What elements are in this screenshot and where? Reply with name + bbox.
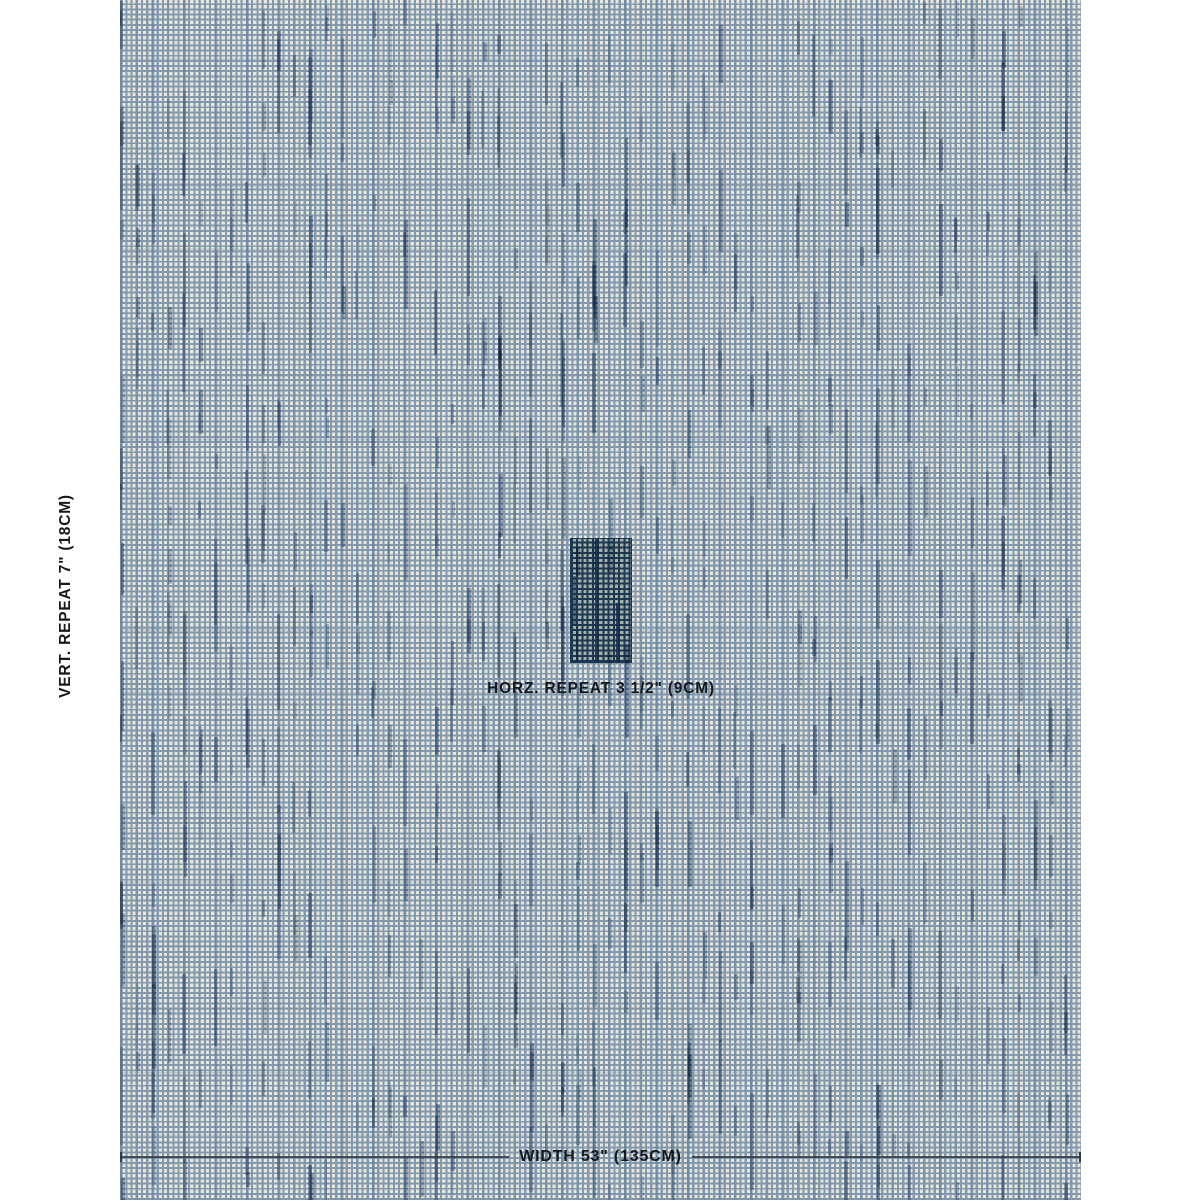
fabric-texture-dash [120, 1047, 123, 1145]
fabric-texture-dash [262, 103, 266, 131]
fabric-texture-dash [246, 709, 250, 768]
fabric-texture-dash [703, 521, 706, 557]
fabric-texture-dash [324, 957, 327, 1005]
fabric-texture-dash [924, 466, 928, 518]
fabric-texture-dash [812, 35, 815, 118]
fabric-texture-dash [938, 931, 942, 1019]
fabric-texture-dash [562, 233, 565, 284]
fabric-texture-dash [467, 968, 470, 1053]
fabric-texture-dash [529, 834, 533, 906]
fabric-texture-dash [908, 769, 911, 855]
fabric-texture-dash [750, 731, 754, 816]
fabric-texture-dash [829, 1086, 832, 1122]
fabric-texture-dash [388, 464, 392, 485]
fabric-texture-dash [1002, 542, 1005, 576]
fabric-texture-dash [262, 739, 265, 786]
fabric-texture-dash [686, 752, 689, 786]
fabric-texture-dash [214, 969, 217, 1046]
fabric-texture-dash [970, 404, 973, 420]
fabric-texture-dash [733, 712, 736, 769]
fabric-texture-dash [310, 630, 313, 677]
fabric-texture-dash [971, 497, 974, 548]
fabric-texture-dash [136, 1052, 140, 1071]
fabric-texture-dash [859, 699, 862, 753]
fabric-texture-dash [356, 1102, 359, 1133]
fabric-texture-dash [1018, 318, 1021, 371]
fabric-texture-dash [325, 174, 328, 236]
fabric-product-image: VERT. REPEAT 7" (18CM) HORZ. REPEAT 3 1/… [0, 0, 1200, 1200]
fabric-texture-dash [891, 939, 895, 987]
fabric-texture-dash [1034, 827, 1037, 890]
fabric-texture-dash [293, 702, 297, 719]
fabric-texture-dash [1018, 192, 1021, 255]
fabric-texture-dash [719, 1040, 722, 1134]
fabric-texture-dash [403, 1096, 407, 1117]
fabric-texture-dash [530, 1052, 534, 1132]
fabric-texture-dash [530, 799, 533, 821]
fabric-texture-dash [451, 77, 455, 119]
fabric-texture-dash [688, 821, 692, 887]
fabric-texture-dash [781, 744, 785, 818]
fabric-texture-dash [168, 685, 171, 719]
fabric-texture-dash [924, 388, 927, 406]
fabric-texture-dash [1064, 156, 1067, 193]
fabric-texture-dash [609, 499, 613, 550]
fabric-texture-dash [168, 307, 172, 350]
fabric-texture-dash [640, 843, 643, 862]
fabric-texture-dash [229, 646, 233, 692]
fabric-texture-dash [230, 968, 233, 997]
fabric-texture-dash [545, 589, 548, 624]
fabric-texture-dash [152, 926, 156, 988]
fabric-texture-dash [515, 963, 518, 1014]
fabric-texture-dash [908, 460, 912, 556]
fabric-texture-dash [576, 789, 579, 823]
fabric-texture-dash [1049, 708, 1053, 762]
fabric-texture-dash [262, 322, 265, 374]
fabric-texture-dash [135, 607, 138, 669]
fabric-texture-dash [798, 610, 802, 644]
fabric-texture-dash [263, 153, 266, 177]
fabric-texture-dash [576, 630, 579, 662]
fabric-texture-dash [1001, 964, 1004, 985]
fabric-texture-dash [357, 225, 360, 271]
fabric-texture-dash [687, 150, 690, 214]
fabric-texture-dash [230, 1065, 233, 1105]
fabric-texture-dash [987, 694, 990, 718]
fabric-texture-dash [1003, 455, 1007, 507]
fabric-texture-dash [404, 849, 408, 901]
fabric-texture-dash [121, 1178, 125, 1200]
fabric-texture-dash [168, 549, 172, 584]
fabric-texture-dash [624, 991, 628, 1014]
fabric-texture-dash [355, 271, 358, 319]
fabric-texture-dash [277, 727, 280, 813]
fabric-texture-dash [121, 376, 125, 444]
fabric-texture-dash [955, 273, 959, 290]
fabric-texture-dash [939, 204, 943, 296]
fabric-texture-dash [923, 111, 926, 167]
fabric-texture-dash [719, 951, 722, 1043]
fabric-texture-dash [136, 238, 140, 265]
fabric-texture-dash [687, 232, 691, 264]
fabric-texture-dash [545, 236, 548, 263]
fabric-texture-dash [702, 979, 706, 1004]
fabric-texture-dash [326, 624, 329, 668]
fabric-texture-dash [1002, 1038, 1006, 1114]
fabric-texture-dash [656, 357, 659, 385]
fabric-texture-dash [230, 874, 234, 903]
fabric-texture-dash [844, 1161, 848, 1200]
fabric-texture-dash [893, 749, 897, 803]
width-label: WIDTH 53" (135CM) [519, 1148, 682, 1166]
fabric-texture-dash [703, 932, 707, 980]
fabric-texture-dash [954, 1077, 957, 1100]
fabric-texture-dash [561, 1003, 564, 1035]
fabric-texture-dash [215, 252, 218, 312]
fabric-texture-dash [387, 542, 390, 563]
fabric-texture-dash [877, 1085, 881, 1155]
fabric-texture-dash [608, 918, 612, 949]
fabric-texture-dash [702, 707, 705, 754]
fabric-texture-dash [718, 912, 721, 932]
fabric-texture-dash [955, 314, 958, 363]
fabric-texture-dash [262, 10, 265, 69]
fabric-texture-dash [750, 496, 754, 522]
fabric-texture-dash [607, 555, 610, 573]
fabric-texture-dash [592, 744, 595, 814]
fabric-texture-dash [782, 905, 785, 964]
fabric-texture-dash [324, 235, 327, 279]
fabric-texture-dash [562, 458, 566, 539]
fabric-texture-dash [924, 716, 927, 780]
fabric-texture-dash [877, 305, 880, 351]
fabric-texture-dash [1049, 448, 1052, 501]
fabric-texture-dash [167, 99, 170, 140]
fabric-texture-dash [373, 826, 376, 904]
fabric-texture-dash [152, 883, 155, 907]
fabric-texture-dash [1033, 578, 1036, 619]
fabric-texture-dash [577, 277, 580, 340]
fabric-texture-dash [703, 567, 706, 589]
fabric-texture-dash [499, 842, 502, 876]
fabric-texture-dash [797, 744, 800, 789]
fabric-texture-dash [183, 233, 186, 327]
fabric-texture-dash [923, 862, 927, 923]
fabric-texture-dash [656, 517, 659, 555]
fabric-texture-dash [167, 592, 170, 618]
fabric-texture-dash [798, 888, 801, 918]
fabric-texture-dash [1034, 282, 1038, 336]
fabric-texture-dash [436, 437, 439, 467]
fabric-texture-dash [514, 880, 517, 929]
fabric-texture-dash [545, 622, 549, 638]
fabric-texture-dash [326, 417, 329, 438]
fabric-texture-dash [262, 405, 265, 443]
fabric-texture-dash [404, 484, 408, 579]
fabric-texture-dash [451, 404, 454, 424]
fabric-texture-dash [655, 811, 659, 888]
fabric-texture-dash [451, 641, 454, 705]
fabric-texture-dash [341, 236, 344, 312]
fabric-texture-dash [702, 347, 705, 395]
fabric-texture-dash [955, 648, 958, 698]
fabric-texture-dash [545, 529, 549, 564]
fabric-texture-dash [247, 263, 250, 332]
fabric-texture-dash [435, 707, 439, 755]
fabric-texture-dash [1064, 1183, 1068, 1200]
fabric-texture-dash [577, 886, 580, 951]
fabric-texture-dash [1002, 31, 1006, 68]
fabric-texture-dash [341, 143, 344, 162]
fabric-texture-dash [829, 404, 833, 435]
fabric-texture-dash [814, 292, 818, 346]
fabric-texture-dash [436, 784, 439, 817]
fabric-texture-dash [688, 1024, 692, 1098]
fabric-texture-dash [482, 369, 485, 409]
fabric-texture-dash [262, 900, 265, 917]
fabric-texture-dash [670, 505, 673, 551]
fabric-texture-dash [499, 474, 503, 538]
fabric-texture-dash [388, 935, 391, 976]
fabric-texture-dash [246, 1172, 250, 1187]
fabric-texture-dash [373, 195, 376, 211]
fabric-texture-dash [388, 725, 392, 768]
fabric-texture-dash [766, 1069, 769, 1119]
fabric-texture-dash [308, 1041, 311, 1099]
fabric-texture-dash [734, 974, 738, 999]
fabric-texture-dash [388, 106, 391, 145]
fabric-texture-dash [861, 311, 864, 327]
fabric-texture-dash [356, 725, 359, 756]
fabric-texture-dash [734, 1106, 737, 1136]
fabric-texture-dash [954, 219, 958, 241]
fabric-texture-dash [829, 39, 833, 55]
fabric-texture-dash [529, 418, 532, 512]
fabric-texture-dash [230, 189, 234, 251]
fabric-texture-dash [703, 124, 706, 142]
fabric-texture-dash [845, 409, 848, 494]
fabric-texture-dash [513, 1069, 516, 1085]
fabric-texture-dash [750, 942, 754, 984]
fabric-texture-dash [1017, 260, 1021, 308]
fabric-texture-dash [718, 330, 722, 428]
fabric-texture-dash [640, 466, 644, 519]
fabric-texture-dash [639, 117, 643, 142]
fabric-texture-dash [246, 385, 249, 451]
fabric-texture-dash [703, 226, 707, 274]
fabric-texture-dash [828, 299, 831, 336]
fabric-texture-dash [546, 448, 549, 510]
fabric-texture-dash [481, 588, 485, 651]
fabric-texture-dash [781, 502, 784, 538]
fabric-texture-dash [577, 767, 581, 791]
fabric-texture-dash [1017, 939, 1020, 961]
fabric-texture-dash [876, 902, 879, 935]
fabric-texture-dash [325, 398, 328, 414]
fabric-texture-dash [671, 701, 674, 717]
fabric-texture-dash [938, 9, 942, 79]
fabric-texture-dash [576, 547, 580, 577]
fabric-texture-dash [1066, 1094, 1069, 1145]
fabric-texture-dash [230, 758, 233, 775]
fabric-texture-dash [389, 80, 393, 105]
fabric-texture-dash [908, 928, 912, 1010]
fabric-texture-dash [1018, 910, 1021, 931]
fabric-texture-dash [403, 739, 407, 826]
fabric-texture-dash [310, 1173, 314, 1200]
fabric-texture-dash [499, 335, 502, 430]
fabric-texture-dash [593, 944, 597, 1008]
fabric-texture-dash [308, 57, 312, 145]
fabric-texture-dash [294, 532, 297, 571]
fabric-texture-dash [183, 615, 186, 675]
fabric-texture-dash [751, 296, 754, 313]
fabric-texture-dash [467, 324, 470, 366]
fabric-texture-dash [135, 164, 139, 212]
fabric-texture-dash [199, 328, 203, 362]
fabric-texture-dash [939, 139, 943, 172]
fabric-texture-dash [292, 782, 295, 833]
fabric-texture-dash [798, 408, 802, 464]
fabric-texture-dash [734, 233, 738, 291]
fabric-texture-dash [1018, 994, 1021, 1011]
fabric-texture-dash [121, 913, 125, 988]
fabric-texture-dash [562, 133, 565, 187]
fabric-texture-dash [1002, 815, 1006, 880]
fabric-texture-dash [861, 37, 864, 99]
fabric-texture-dash [293, 871, 296, 935]
fabric-texture-dash [435, 951, 438, 1035]
fabric-texture-dash [183, 716, 187, 755]
fabric-texture-dash [483, 42, 487, 61]
fabric-texture-dash [766, 351, 769, 410]
fabric-texture-dash [451, 978, 454, 1022]
fabric-texture-dash [719, 25, 723, 84]
fabric-texture-dash [121, 804, 125, 851]
fabric-texture-dash [671, 557, 674, 573]
fabric-texture-dash [325, 1022, 329, 1082]
fabric-texture-dash [1034, 938, 1038, 977]
width-dimension: WIDTH 53" (135CM) [120, 1147, 1081, 1166]
fabric-texture-dash [907, 708, 911, 760]
fabric-texture-dash [655, 736, 659, 771]
fabric-texture-dash [828, 776, 832, 831]
fabric-texture-dash [859, 107, 862, 157]
fabric-texture-dash [182, 974, 186, 1054]
fabric-streak [616, 603, 620, 662]
fabric-texture-dash [1033, 374, 1036, 437]
width-line-left [122, 1156, 509, 1158]
width-line-right [692, 1156, 1079, 1158]
fabric-texture-dash [986, 211, 989, 256]
fabric-texture-dash [641, 376, 645, 412]
fabric-texture-dash [765, 426, 769, 444]
fabric-texture-dash [389, 24, 392, 82]
fabric-texture-dash [750, 840, 753, 910]
fabric-texture-dash [308, 790, 311, 817]
fabric-texture-dash [199, 737, 202, 793]
fabric-texture-dash [513, 483, 516, 543]
fabric-texture-dash [324, 500, 328, 553]
fabric-texture-dash [262, 583, 265, 609]
fabric-texture-dash [1050, 956, 1053, 991]
fabric-texture-dash [545, 43, 548, 105]
fabric-texture-dash [719, 170, 723, 252]
fabric-texture-dash [1066, 618, 1069, 650]
fabric-texture-dash [452, 501, 455, 518]
fabric-texture-dash [939, 623, 943, 689]
fabric-texture-dash [845, 202, 849, 227]
fabric-texture-dash [514, 437, 517, 484]
fabric-texture-dash [435, 45, 438, 122]
fabric-texture-dash [294, 201, 297, 238]
fabric-texture-dash [844, 110, 848, 195]
fabric-texture-dash [735, 777, 739, 819]
fabric-texture-dash [151, 732, 155, 815]
fabric-texture-dash [672, 460, 676, 487]
fabric-texture-dash [199, 1069, 202, 1108]
fabric-texture-dash [576, 862, 580, 880]
fabric-texture-dash [828, 248, 831, 304]
fabric-texture-dash [578, 835, 581, 864]
fabric-texture-dash [136, 297, 140, 319]
fabric-texture-dash [182, 153, 185, 196]
fabric-texture-dash [120, 448, 123, 490]
fabric-texture-dash [734, 685, 738, 717]
fabric-texture-dash [956, 366, 959, 417]
fabric-texture-dash [214, 737, 218, 783]
fabric-texture-dash [183, 826, 187, 862]
fabric-texture-dash [483, 341, 487, 366]
fabric-texture-dash [293, 587, 296, 647]
fabric-texture-dash [955, 986, 959, 1023]
fabric-texture-dash [718, 351, 722, 368]
fabric-texture-dash [623, 253, 627, 328]
fabric-texture-dash [168, 506, 172, 526]
fabric-texture-dash [214, 539, 217, 625]
fabric-texture-dash [356, 573, 359, 625]
fabric-texture-dash [1050, 1001, 1053, 1053]
fabric-texture-dash [908, 356, 911, 376]
fabric-texture-dash [1064, 735, 1067, 767]
fabric-texture-dash [151, 313, 154, 332]
fabric-texture-dash [956, 1, 959, 38]
fabric-texture-dash [497, 116, 500, 168]
fabric-texture-dash [576, 58, 579, 87]
fabric-texture-dash [1019, 6, 1023, 27]
fabric-texture-dash [987, 1007, 990, 1065]
fabric-texture-dash [641, 1176, 644, 1200]
fabric-texture-dash [277, 39, 280, 133]
fabric-texture-dash [277, 399, 280, 431]
vertical-repeat-label: VERT. REPEAT 7" (18CM) [56, 446, 76, 746]
fabric-texture-dash [481, 91, 484, 148]
fabric-texture-dash [371, 429, 375, 466]
fabric-texture-dash [672, 151, 675, 178]
fabric-texture-dash [891, 150, 894, 188]
fabric-texture-dash [1017, 575, 1021, 613]
fabric-texture-dash [1064, 975, 1067, 1055]
fabric-texture-dash [482, 706, 486, 752]
fabric-texture-dash [199, 201, 203, 226]
fabric-texture-dash [640, 321, 644, 368]
fabric-texture-dash [497, 35, 501, 54]
fabric-texture-dash [309, 269, 312, 353]
fabric-texture-dash [514, 637, 517, 674]
fabric-texture-dash [923, 2, 926, 25]
fabric-texture-dash [245, 182, 248, 223]
